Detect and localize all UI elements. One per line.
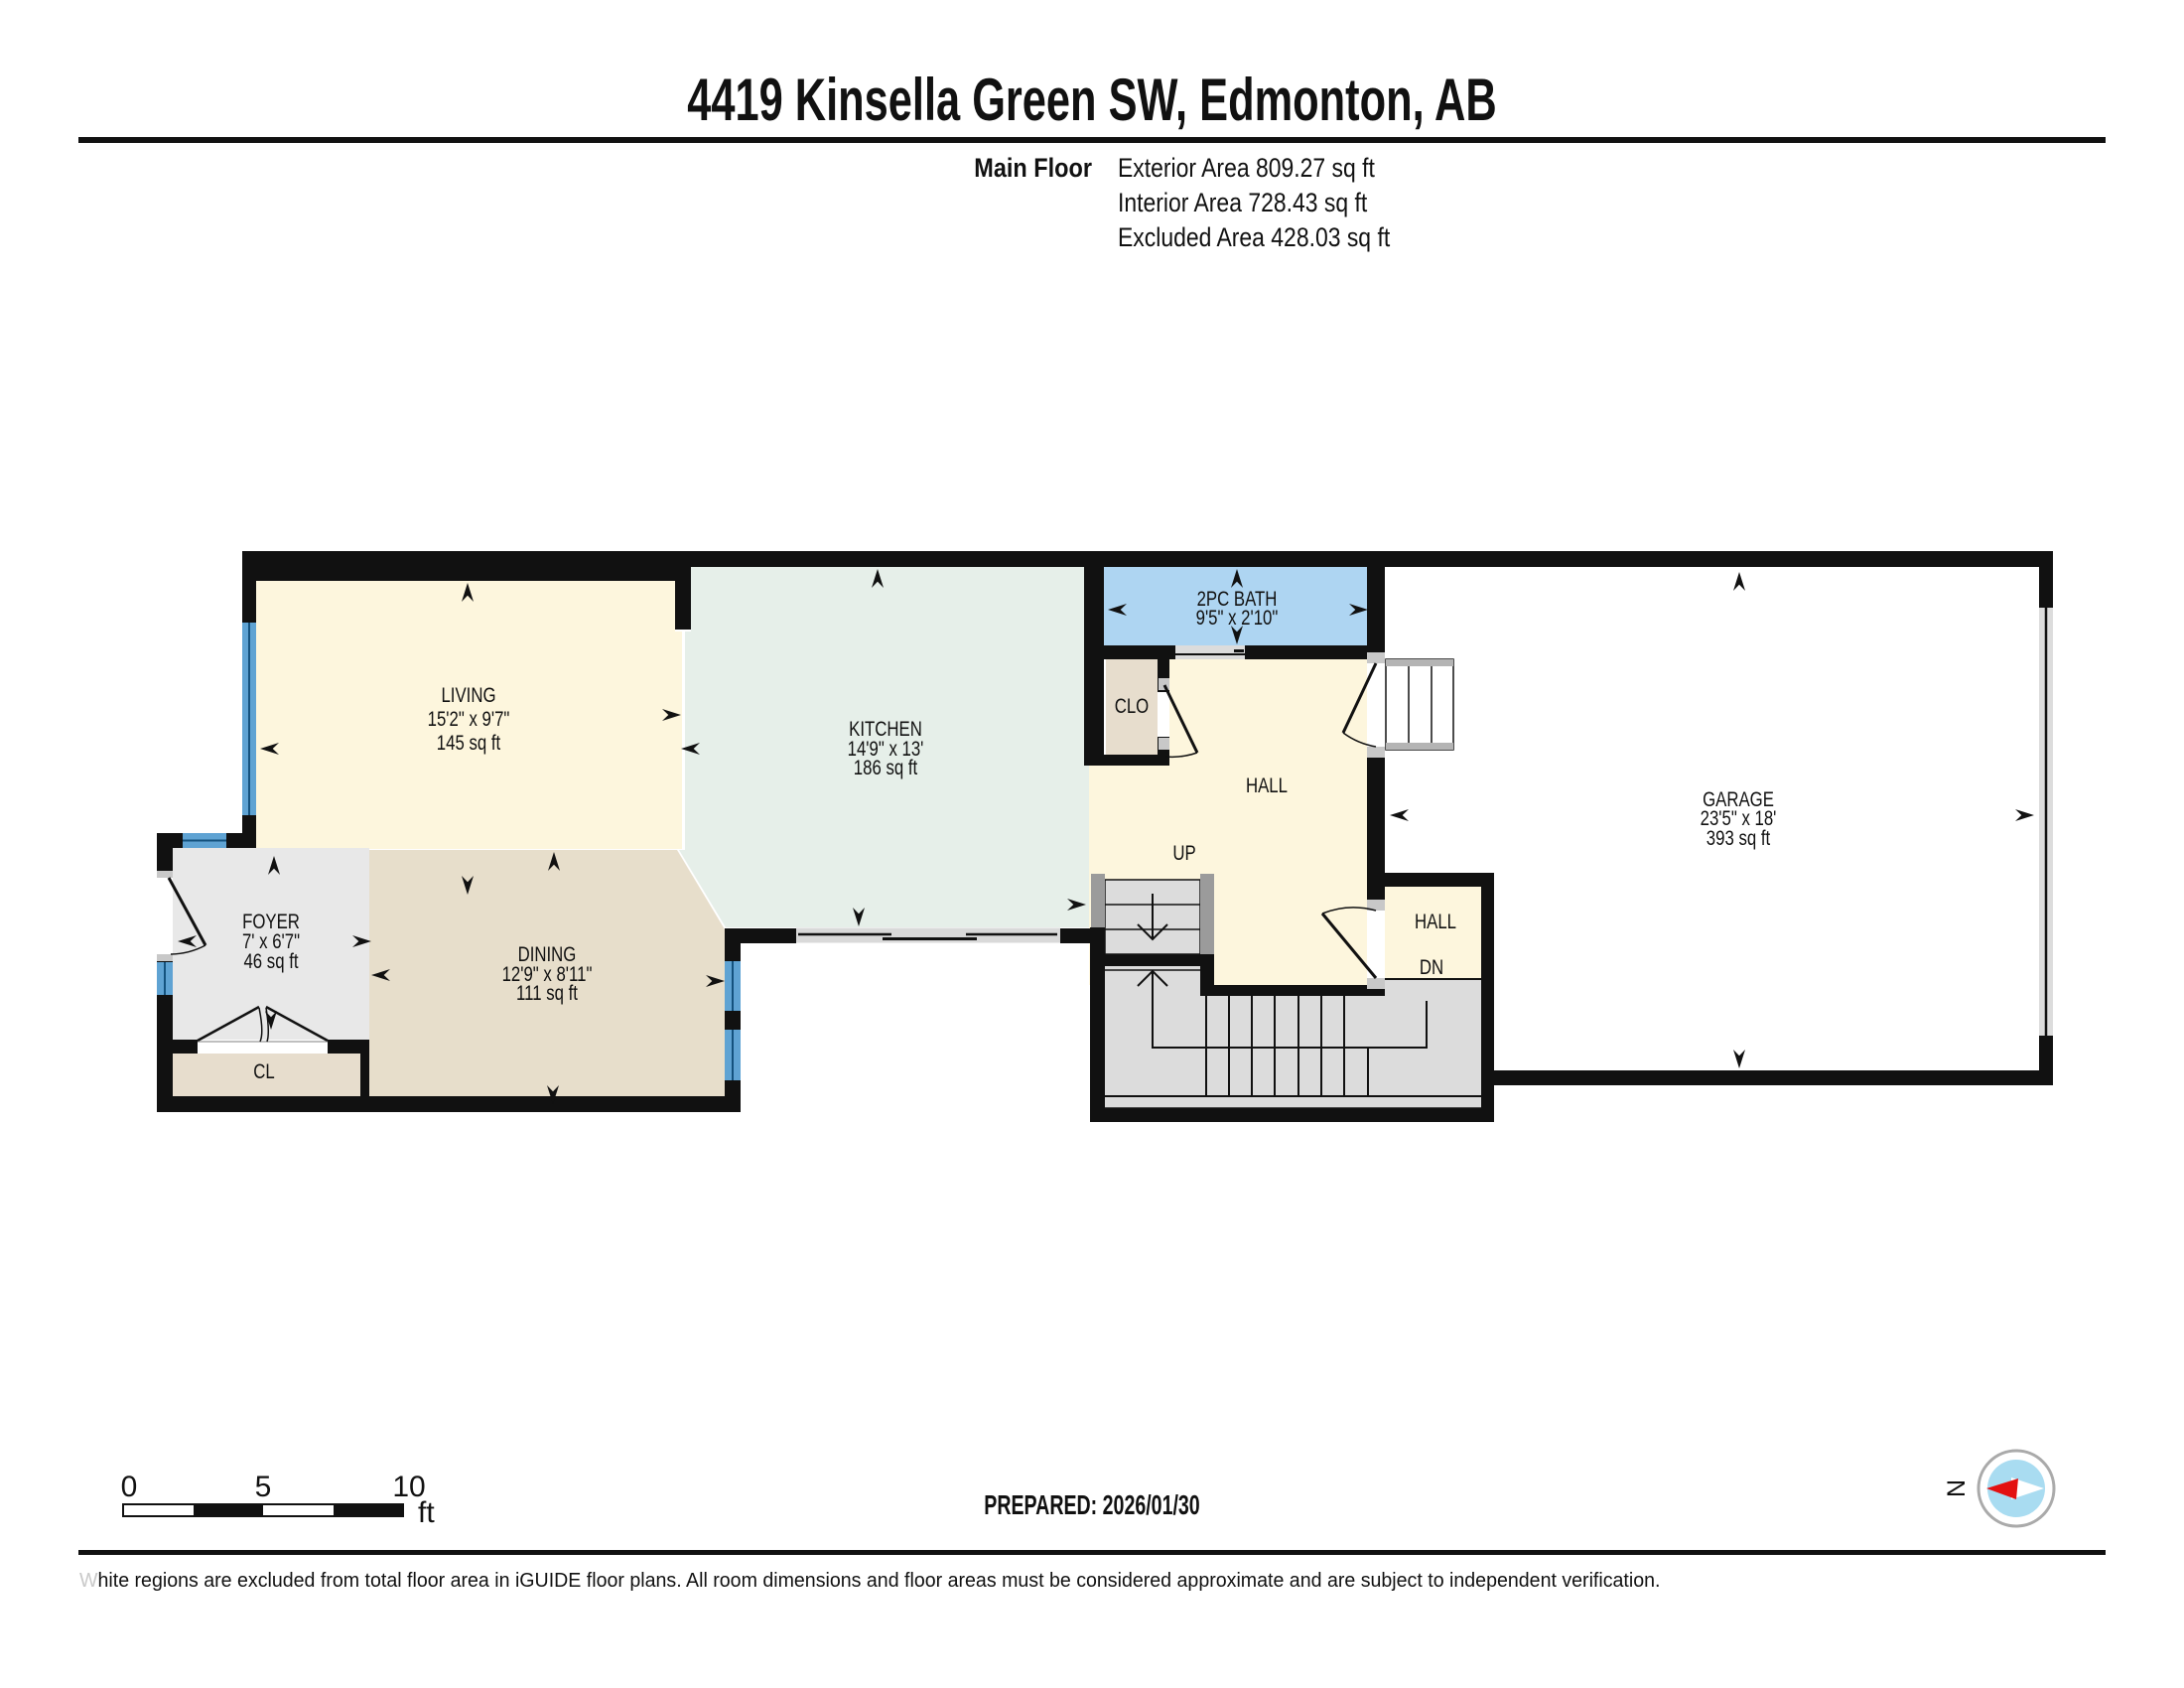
svg-text:9'5" x 2'10": 9'5" x 2'10"	[1196, 607, 1279, 630]
svg-text:DN: DN	[1420, 956, 1443, 979]
svg-text:393 sq ft: 393 sq ft	[1706, 827, 1771, 850]
svg-text:0: 0	[121, 1471, 138, 1503]
svg-text:5: 5	[255, 1471, 272, 1503]
svg-text:LIVING: LIVING	[441, 684, 495, 707]
svg-text:Excluded Area 428.03 sq ft: Excluded Area 428.03 sq ft	[1118, 222, 1390, 252]
svg-text:N: N	[1943, 1479, 1971, 1497]
svg-text:HALL: HALL	[1415, 911, 1456, 933]
svg-text:Interior Area 728.43 sq ft: Interior Area 728.43 sq ft	[1118, 188, 1367, 217]
svg-text:15'2" x 9'7": 15'2" x 9'7"	[428, 708, 510, 731]
svg-text:Main Floor: Main Floor	[974, 154, 1092, 184]
svg-text:ft: ft	[418, 1496, 435, 1529]
svg-text:HALL: HALL	[1246, 774, 1288, 797]
svg-text:CL: CL	[253, 1060, 274, 1083]
svg-text:111 sq ft: 111 sq ft	[516, 982, 579, 1005]
svg-text:White regions are excluded fro: White regions are excluded from total fl…	[79, 1570, 1660, 1592]
svg-text:CLO: CLO	[1115, 695, 1150, 718]
svg-text:46 sq ft: 46 sq ft	[243, 950, 299, 973]
svg-text:UP: UP	[1172, 842, 1195, 865]
svg-text:145 sq ft: 145 sq ft	[437, 732, 501, 755]
svg-text:Exterior Area 809.27 sq ft: Exterior Area 809.27 sq ft	[1118, 153, 1375, 183]
svg-text:186 sq ft: 186 sq ft	[854, 757, 918, 779]
svg-text:PREPARED: 2026/01/30: PREPARED: 2026/01/30	[984, 1490, 1199, 1521]
svg-text:4419 Kinsella Green SW, Edmont: 4419 Kinsella Green SW, Edmonton, AB	[687, 68, 1496, 133]
